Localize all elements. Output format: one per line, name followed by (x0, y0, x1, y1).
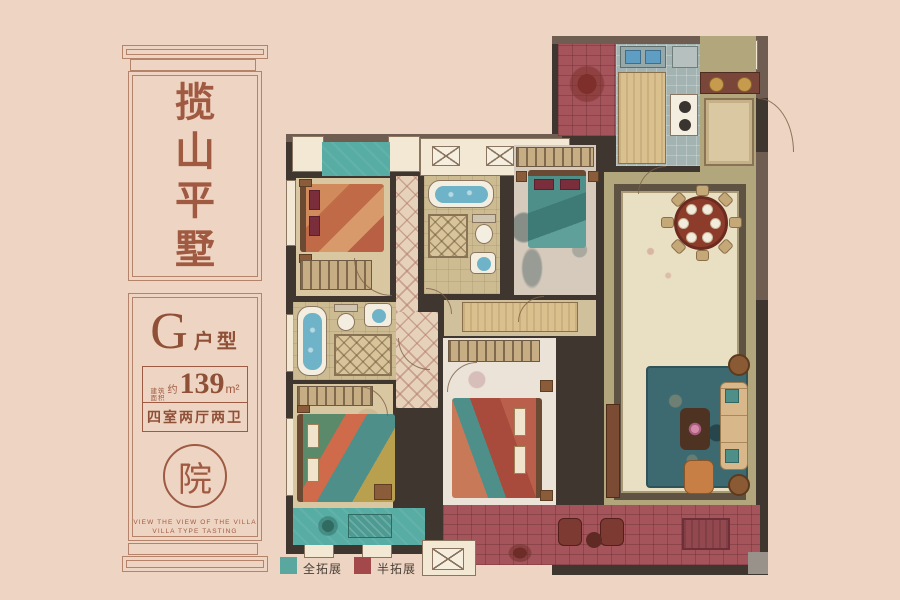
decor-icon (709, 77, 724, 92)
area-prefix: 建筑 面积 (151, 388, 166, 402)
rooms-spec: 四室两厅两卫 (143, 402, 247, 431)
bed (300, 184, 384, 252)
window-icon (486, 146, 514, 166)
balcony-chair (600, 518, 624, 546)
decor-icon (737, 77, 752, 92)
pillow (560, 179, 580, 190)
window-box (362, 544, 392, 558)
floorplan-poster: 揽 山 平 墅 G 户型 建筑 面积 约 139 m² 四室两厅 (0, 0, 900, 600)
plant-icon (316, 514, 340, 538)
balcony-chair (558, 518, 582, 546)
window-box (304, 544, 334, 558)
plant-icon (506, 542, 534, 564)
english-caption: VIEW THE VIEW OF THE VILLA VILLA TYPE TA… (129, 518, 261, 536)
title-char: 山 (175, 130, 215, 174)
area-approx: 约 (168, 381, 178, 396)
sink (364, 303, 392, 327)
pillow (309, 216, 320, 236)
window-icon (432, 146, 460, 166)
area-value: 139 (180, 369, 225, 399)
window-strip (286, 180, 296, 246)
pillow (307, 458, 319, 482)
toilet (472, 214, 496, 246)
pillow (514, 446, 526, 474)
pillow (514, 408, 526, 436)
pillow (534, 179, 554, 190)
sidebar-cap-bar-narrow (130, 59, 256, 71)
window-box (388, 136, 420, 172)
kitchen-island-counter (618, 72, 666, 164)
bathtub-water (303, 313, 322, 370)
tv-cabinet (606, 404, 620, 498)
unit-type-row: G 户型 (129, 306, 261, 358)
balcony-top-left-full-expand (322, 142, 390, 176)
nightstand (588, 171, 599, 182)
title-char: 揽 (175, 81, 215, 125)
sidebar-base-bar-narrow (128, 543, 258, 555)
fridge (672, 46, 698, 68)
pillow (307, 424, 319, 448)
nightstand (297, 405, 310, 413)
bed (528, 170, 586, 248)
nightstand (540, 490, 553, 501)
stove (670, 94, 698, 136)
bed (452, 398, 542, 498)
dining-plate (702, 204, 713, 215)
toilet-bowl (337, 313, 355, 331)
balcony-table (586, 532, 602, 548)
dining-chair (661, 217, 674, 228)
area-unit: m² (226, 382, 240, 396)
unit-info-box: G 户型 建筑 面积 约 139 m² 四室两厅两卫 院 VIEW THE VI… (128, 293, 262, 541)
window-box (292, 136, 324, 172)
nightstand (516, 171, 527, 182)
burner-icon (679, 119, 691, 131)
nightstand (540, 380, 553, 392)
legend-label-full-expand: 全拓展 (303, 560, 342, 577)
toilet-bowl (475, 224, 493, 244)
dining-plate (686, 204, 697, 215)
unit-letter: G (150, 306, 188, 358)
toilet-tank (472, 214, 496, 223)
sink-basin (477, 257, 491, 271)
dining-plate (678, 218, 689, 229)
title-char: 平 (175, 179, 215, 223)
sink-basin (625, 50, 641, 64)
window-icon (432, 548, 464, 570)
balcony-mat (682, 518, 730, 550)
entry-rug (704, 98, 754, 166)
area-row: 建筑 面积 约 139 m² (143, 367, 247, 402)
nightstand (299, 179, 312, 187)
toilet (334, 304, 358, 332)
dining-plate (710, 218, 721, 229)
pillow (309, 190, 320, 210)
dining-chair (696, 250, 709, 261)
title-char: 墅 (175, 228, 215, 272)
sink-basin (645, 50, 661, 64)
toilet-tank (334, 304, 358, 312)
coffee-table (680, 408, 710, 450)
dining-plate (686, 232, 697, 243)
sofa-pillow (725, 389, 739, 403)
seal-stamp-icon: 院 (163, 444, 227, 508)
burner-icon (679, 101, 691, 113)
dining-plate (702, 232, 713, 243)
sidebar-base-bar-wide (122, 556, 268, 572)
sink-basin (372, 309, 386, 323)
side-table (728, 474, 750, 496)
pillar (748, 552, 768, 574)
legend-swatch-half-expand (354, 557, 371, 574)
legend-label-half-expand: 半拓展 (377, 560, 416, 577)
sink (470, 252, 496, 274)
bedroom-table (374, 484, 392, 500)
wardrobe (448, 340, 540, 362)
wardrobe (516, 147, 594, 167)
dining-chair (696, 185, 709, 196)
balcony-mat (348, 514, 392, 538)
unit-type-label: 户型 (194, 325, 240, 354)
entry-door-arc (758, 98, 794, 152)
armchair (684, 460, 714, 494)
area-table: 建筑 面积 约 139 m² 四室两厅两卫 (142, 366, 248, 432)
shower-area (428, 214, 468, 258)
sidebar-cap-bar-wide (122, 45, 268, 59)
flower-decor-icon (688, 422, 702, 436)
side-table (728, 354, 750, 376)
sofa (720, 382, 748, 470)
shower-area (334, 334, 392, 376)
plant-icon (566, 62, 608, 106)
legend-swatch-full-expand (280, 557, 297, 574)
project-title: 揽 山 平 墅 (128, 71, 262, 281)
bathtub (297, 306, 327, 376)
bathtub-water (435, 186, 488, 203)
kitchen-sink-counter (620, 46, 666, 68)
console-table (700, 72, 760, 94)
corridor (396, 176, 418, 312)
sofa-pillow (725, 449, 739, 463)
bathtub (428, 180, 494, 208)
dining-chair (729, 217, 742, 228)
